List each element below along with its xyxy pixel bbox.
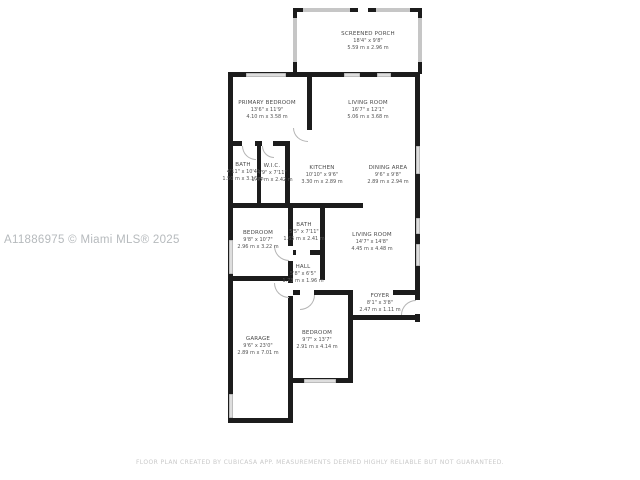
room-name: PRIMARY BEDROOM [238,100,296,107]
room-name: W.I.C. [251,163,292,170]
room-label-living-room-right: LIVING ROOM 14'7" x 14'8" 4.45 m x 4.48 … [351,232,392,252]
room-dims-imperial: 9'7" x 13'7" [296,337,337,344]
room-dims-metric: 2.47 m x 1.11 m [359,307,400,314]
room-name: LIVING ROOM [347,100,388,107]
window [304,379,336,383]
wall-bedroom2-right [348,290,353,383]
door-swing-arc [274,283,289,298]
room-dims-imperial: 9'8" x 10'7" [237,237,278,244]
room-label-foyer: FOYER 8'1" x 3'8" 2.47 m x 1.11 m [359,293,400,313]
wall-garage-bottom [228,418,293,423]
room-name: KITCHEN [301,165,342,172]
room-dims-metric: 1.65 m x 2.41 m [283,236,324,243]
window [416,244,420,266]
wall-mid-horizontal [228,203,363,208]
floorplan-disclaimer: FLOOR PLAN CREATED BY CUBICASA APP. MEAS… [0,459,640,466]
room-dims-imperial: 9'6" x 23'0" [237,343,278,350]
door-opening-bath2 [296,250,310,255]
room-name: DINING AREA [367,165,408,172]
room-name: SCREENED PORCH [341,31,395,38]
door-swing-arc [300,295,315,310]
porch-post [418,8,422,18]
window [416,146,420,174]
room-dims-imperial: 14'7" x 14'8" [351,239,392,246]
room-label-kitchen: KITCHEN 10'10" x 9'6" 3.30 m x 2.89 m [301,165,342,185]
room-label-primary-bedroom: PRIMARY BEDROOM 13'6" x 11'9" 4.10 m x 3… [238,100,296,120]
wall-primary-living-divider [307,72,312,130]
room-label-hall: HALL 5'8" x 6'5" 1.73 m x 1.96 m [282,264,323,284]
room-name: GARAGE [237,336,278,343]
room-label-living-room-top: LIVING ROOM 16'7" x 12'1" 5.06 m x 3.68 … [347,100,388,120]
floor-plan-canvas: A11886975 © Miami MLS® 2025 FLOOR PLAN C… [0,0,640,480]
room-dims-metric: 1.73 m x 1.96 m [282,278,323,285]
door-swing-arc [293,128,308,142]
wall-foyer-bottom [348,315,420,320]
window [229,394,233,418]
room-name: BATH [283,222,324,229]
room-label-wic: W.I.C. 4'9" x 7'11" 1.45 m x 2.42 m [251,163,292,183]
room-dims-metric: 4.45 m x 4.48 m [351,246,392,253]
sliding-door [377,73,391,77]
room-name: BEDROOM [237,230,278,237]
room-dims-metric: 2.89 m x 2.94 m [367,179,408,186]
room-dims-metric: 5.59 m x 2.96 m [341,45,395,52]
room-dims-metric: 2.89 m x 7.01 m [237,350,278,357]
room-name: LIVING ROOM [351,232,392,239]
room-name: FOYER [359,293,400,300]
room-dims-metric: 2.96 m x 3.22 m [237,244,278,251]
door-swing-arc [401,300,416,315]
room-dims-imperial: 4'9" x 7'11" [251,170,292,177]
window [416,218,420,234]
room-dims-imperial: 10'10" x 9'6" [301,172,342,179]
porch-screen-opening [358,8,368,12]
room-label-dining-area: DINING AREA 9'6" x 9'8" 2.89 m x 2.94 m [367,165,408,185]
room-label-screened-porch: SCREENED PORCH 18'4" x 9'8" 5.59 m x 2.9… [341,31,395,51]
room-dims-imperial: 5'5" x 7'11" [283,229,324,236]
sliding-door [344,73,360,77]
room-dims-metric: 4.10 m x 3.58 m [238,114,296,121]
mls-watermark: A11886975 © Miami MLS® 2025 [4,234,180,246]
room-name: HALL [282,264,323,271]
porch-post [368,8,376,12]
door-swing-arc [262,146,274,158]
porch-post [350,8,358,12]
door-swing-arc [242,146,256,160]
room-dims-metric: 3.30 m x 2.89 m [301,179,342,186]
window [229,240,233,274]
room-name: BEDROOM [296,330,337,337]
porch-post [293,8,297,18]
room-dims-imperial: 16'7" x 12'1" [347,107,388,114]
room-dims-metric: 1.45 m x 2.42 m [251,177,292,184]
room-label-bedroom-bottom: BEDROOM 9'7" x 13'7" 2.91 m x 4.14 m [296,330,337,350]
room-label-bedroom-mid: BEDROOM 9'8" x 10'7" 2.96 m x 3.22 m [237,230,278,250]
room-dims-metric: 2.91 m x 4.14 m [296,344,337,351]
room-dims-metric: 5.06 m x 3.68 m [347,114,388,121]
room-label-bath-hall: BATH 5'5" x 7'11" 1.65 m x 2.41 m [283,222,324,242]
window [246,73,286,77]
exterior-wall-right [415,72,420,322]
room-label-garage: GARAGE 9'6" x 23'0" 2.89 m x 7.01 m [237,336,278,356]
